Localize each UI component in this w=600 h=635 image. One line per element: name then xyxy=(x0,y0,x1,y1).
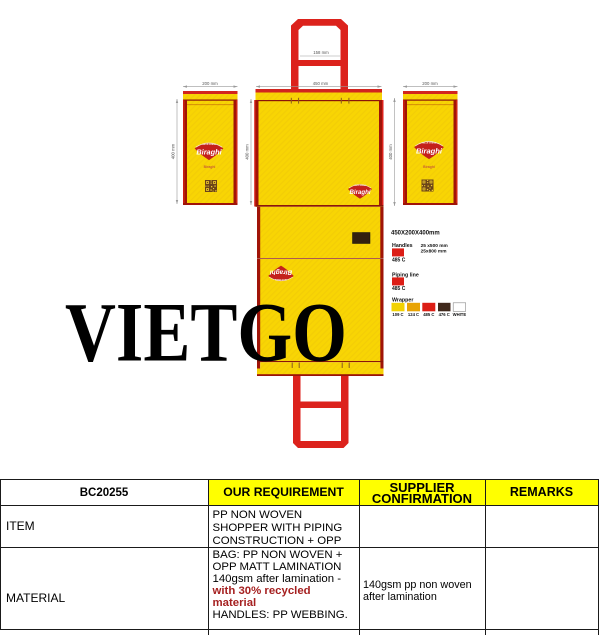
svg-text:158 mm: 158 mm xyxy=(313,50,329,55)
svg-text:Biraghi: Biraghi xyxy=(204,165,216,169)
svg-text:485 C: 485 C xyxy=(392,257,406,263)
svg-text:200 mm: 200 mm xyxy=(422,81,438,86)
svg-text:450 mm: 450 mm xyxy=(313,81,329,86)
svg-text:485 C: 485 C xyxy=(423,312,434,317)
svg-text:25x800 mm: 25x800 mm xyxy=(421,249,447,255)
svg-text:400 mm: 400 mm xyxy=(388,144,393,160)
svg-text:109 C: 109 C xyxy=(392,312,403,317)
svg-text:485 C: 485 C xyxy=(392,286,406,292)
svg-text:25 x500 mm: 25 x500 mm xyxy=(421,243,448,249)
svg-text:Handles: Handles xyxy=(392,243,413,249)
svg-text:450X200X400mm: 450X200X400mm xyxy=(391,231,440,237)
svg-text:124 C: 124 C xyxy=(408,312,419,317)
svg-text:400 mm: 400 mm xyxy=(245,144,250,160)
svg-text:Wrapper: Wrapper xyxy=(392,298,413,304)
svg-text:Biraghi: Biraghi xyxy=(423,165,435,169)
svg-text:VIETGO: VIETGO xyxy=(65,286,347,380)
svg-text:WHITE: WHITE xyxy=(453,312,467,317)
svg-text:400 mm: 400 mm xyxy=(171,143,176,159)
svg-text:200 mm: 200 mm xyxy=(202,81,218,86)
svg-text:476 C: 476 C xyxy=(439,312,450,317)
